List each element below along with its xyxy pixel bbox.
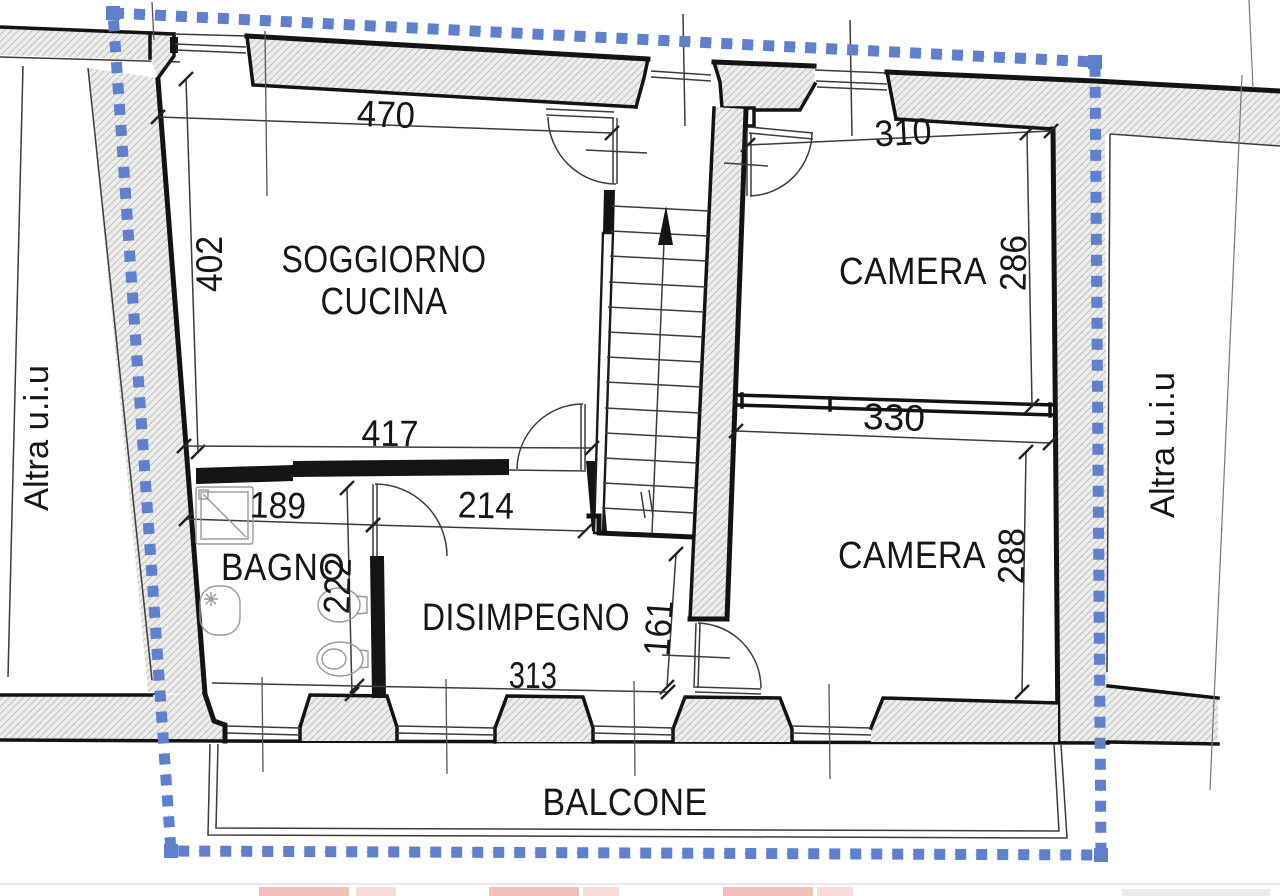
svg-text:288: 288 xyxy=(991,528,1033,585)
svg-text:189: 189 xyxy=(249,484,306,526)
svg-text:DISIMPEGNO: DISIMPEGNO xyxy=(422,597,630,639)
svg-text:CAMERA: CAMERA xyxy=(838,535,986,577)
svg-text:310: 310 xyxy=(873,111,932,155)
svg-text:402: 402 xyxy=(189,236,230,292)
svg-text:286: 286 xyxy=(993,235,1035,292)
svg-text:CUCINA: CUCINA xyxy=(321,281,448,323)
svg-text:CAMERA: CAMERA xyxy=(839,251,987,293)
svg-text:214: 214 xyxy=(457,484,514,526)
svg-text:330: 330 xyxy=(862,396,925,439)
svg-text:222: 222 xyxy=(316,557,359,614)
svg-text:470: 470 xyxy=(356,93,416,136)
svg-text:313: 313 xyxy=(509,655,558,697)
svg-text:BALCONE: BALCONE xyxy=(543,782,708,824)
svg-text:Altra u.i.u: Altra u.i.u xyxy=(1144,372,1182,518)
svg-text:SOGGIORNO: SOGGIORNO xyxy=(282,239,487,281)
svg-text:Altra u.i.u: Altra u.i.u xyxy=(18,365,56,511)
svg-text:417: 417 xyxy=(361,413,418,454)
svg-text:161: 161 xyxy=(636,599,681,658)
